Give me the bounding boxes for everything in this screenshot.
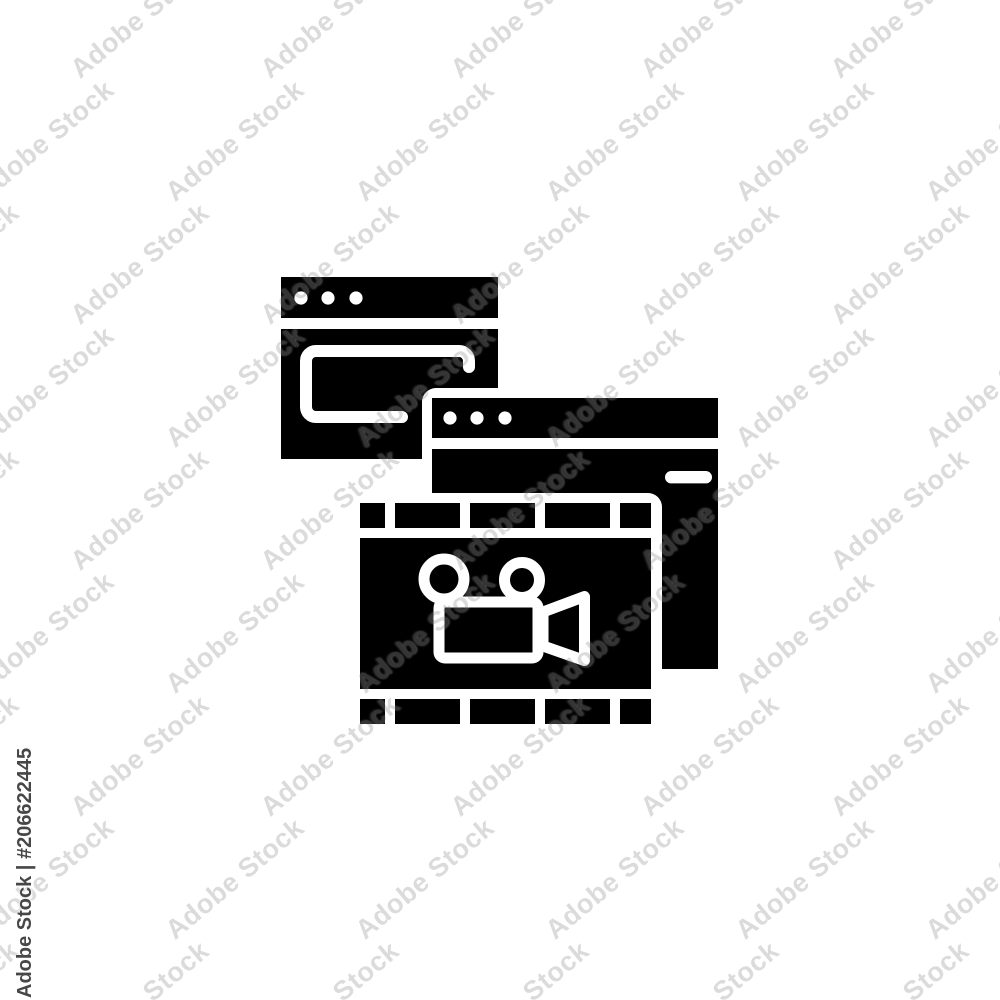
window-dot [498,411,511,424]
window-titlebar [281,277,498,318]
window-dot [470,411,483,424]
film-perforation [545,503,610,528]
film-perforation [620,503,651,528]
camera-reel-left [424,559,464,599]
film-perforation [360,699,385,724]
window-dot [349,291,362,304]
film-perforation [360,503,385,528]
camera-lens [543,597,585,661]
window-dot [294,291,307,304]
filmstrip-icon [350,493,662,734]
film-perforation [395,699,460,724]
window-dot [321,291,334,304]
film-perforation [620,699,651,724]
film-perforation [545,699,610,724]
video-content-icon [0,0,1000,1000]
stock-image-canvas: Adobe StockAdobe StockAdobe StockAdobe S… [0,0,1000,1000]
film-perforation [470,503,535,528]
camera-reel-right [505,563,540,598]
stock-id-watermark: Adobe Stock | #206622445 [14,748,37,998]
film-perforation [395,503,460,528]
camera-body [439,602,538,658]
film-perforation [470,699,535,724]
window-dot [443,411,456,424]
menu-dash [665,471,712,483]
